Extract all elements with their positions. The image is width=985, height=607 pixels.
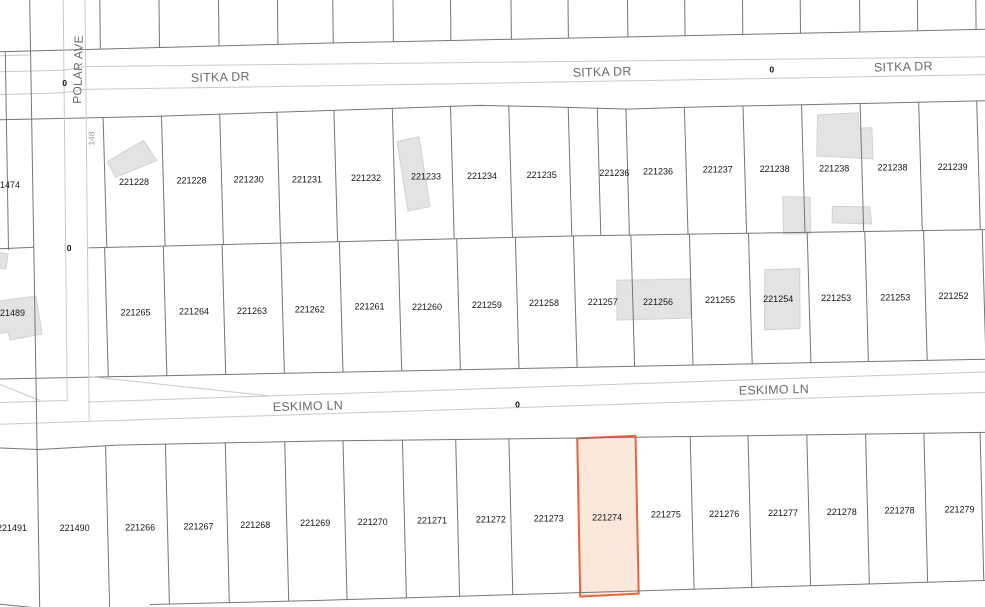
svg-text:ESKIMO LN: ESKIMO LN [273,398,344,414]
svg-text:221231: 221231 [292,175,322,185]
svg-text:221269: 221269 [300,518,330,528]
svg-text:221254: 221254 [763,294,793,304]
svg-text:221259: 221259 [472,300,502,310]
svg-text:221268: 221268 [240,520,270,530]
svg-text:221266: 221266 [125,522,155,532]
svg-text:221236: 221236 [643,166,673,176]
svg-text:221275: 221275 [651,510,681,520]
svg-text:221234: 221234 [467,171,497,181]
svg-text:221272: 221272 [476,515,506,525]
svg-text:221260: 221260 [412,302,442,312]
svg-text:221255: 221255 [705,295,735,305]
svg-text:0: 0 [62,78,67,88]
svg-text:221490: 221490 [60,523,90,533]
svg-text:0: 0 [67,243,72,253]
svg-text:221274: 221274 [592,513,622,523]
svg-text:221279: 221279 [944,505,974,515]
svg-text:221278: 221278 [827,507,857,517]
svg-text:221258: 221258 [529,298,559,308]
svg-text:221235: 221235 [527,170,557,180]
svg-text:221238: 221238 [819,163,849,173]
svg-text:221271: 221271 [417,516,447,526]
svg-text:SITKA DR: SITKA DR [191,69,250,85]
svg-text:221278: 221278 [885,506,915,516]
svg-text:221238: 221238 [877,163,907,173]
svg-text:221252: 221252 [938,291,968,301]
svg-text:221257: 221257 [588,297,618,307]
svg-text:221474: 221474 [0,180,20,190]
svg-text:221233: 221233 [411,172,441,182]
svg-text:SITKA DR: SITKA DR [573,64,632,80]
svg-text:221261: 221261 [354,302,384,312]
svg-text:221489: 221489 [0,308,25,318]
svg-text:221232: 221232 [351,173,381,183]
svg-text:221276: 221276 [709,509,739,519]
svg-text:221228: 221228 [176,176,206,186]
svg-text:221262: 221262 [295,304,325,314]
svg-text:148: 148 [86,131,96,146]
svg-text:POLAR AVE: POLAR AVE [70,35,86,104]
svg-text:221263: 221263 [237,306,267,316]
svg-text:221277: 221277 [768,508,798,518]
svg-text:221491: 221491 [0,523,27,533]
svg-text:221267: 221267 [183,521,213,531]
svg-text:221238: 221238 [760,164,790,174]
svg-text:SITKA DR: SITKA DR [874,59,933,75]
svg-text:221253: 221253 [880,293,910,303]
svg-text:221228: 221228 [119,177,149,187]
svg-text:0: 0 [515,400,520,410]
svg-text:221270: 221270 [358,517,388,527]
svg-text:221230: 221230 [234,175,264,185]
svg-text:221264: 221264 [179,307,209,317]
svg-text:221253: 221253 [821,293,851,303]
svg-text:221236: 221236 [599,168,629,178]
svg-text:221256: 221256 [643,297,673,307]
svg-text:0: 0 [769,65,774,75]
svg-text:221265: 221265 [120,308,150,318]
svg-text:221273: 221273 [534,514,564,524]
svg-text:221239: 221239 [938,162,968,172]
svg-text:221237: 221237 [703,164,733,174]
svg-text:ESKIMO LN: ESKIMO LN [739,382,810,398]
